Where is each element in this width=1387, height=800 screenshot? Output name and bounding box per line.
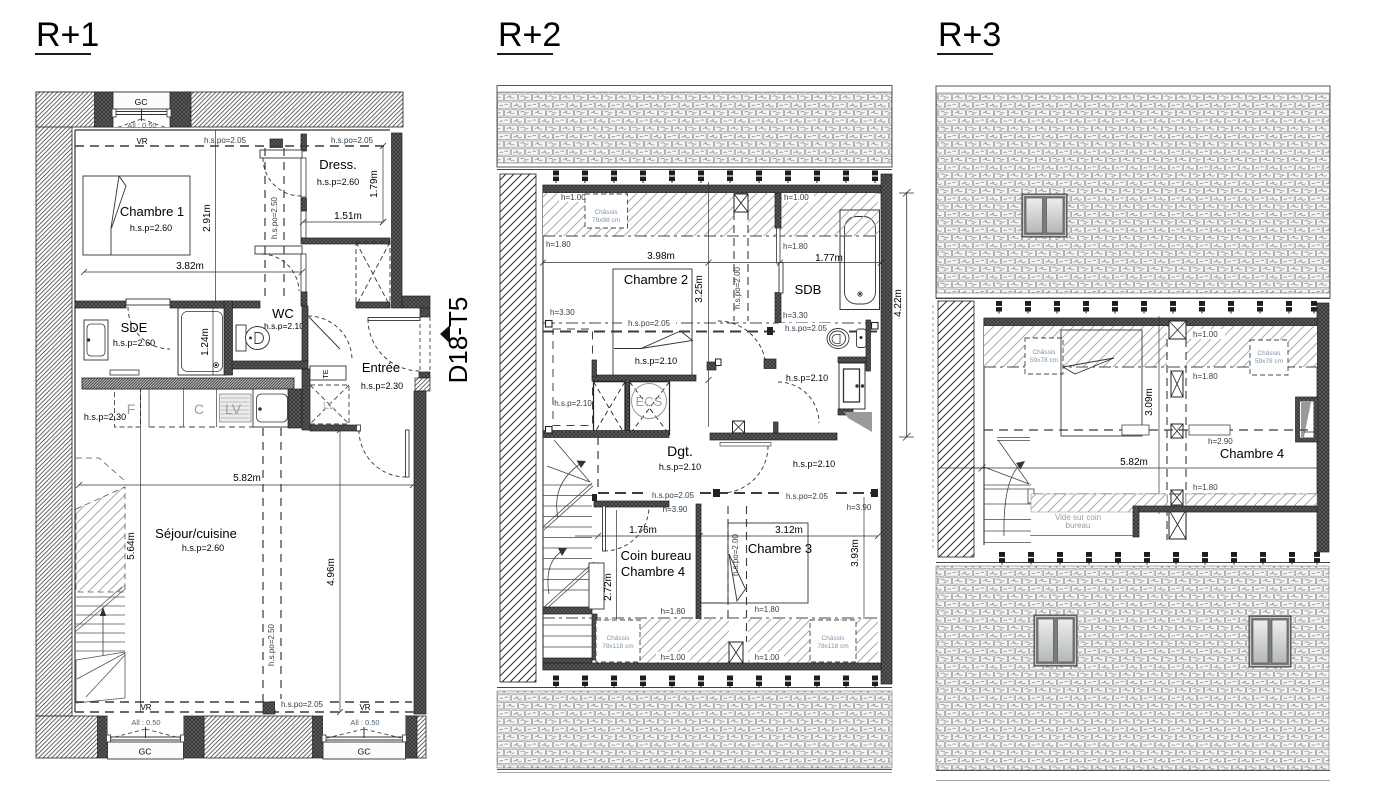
svg-text:h.s.po=2.50: h.s.po=2.50 <box>267 623 276 666</box>
svg-text:Chambre 1: Chambre 1 <box>120 204 184 219</box>
svg-text:All : 0.50: All : 0.50 <box>350 718 379 727</box>
svg-text:h=3.90: h=3.90 <box>847 503 872 512</box>
svg-text:Coin bureau: Coin bureau <box>621 548 692 563</box>
svg-text:h.s.po=2.05: h.s.po=2.05 <box>281 700 324 709</box>
svg-text:F: F <box>127 401 136 417</box>
svg-text:bureau: bureau <box>1066 521 1091 530</box>
svg-text:3.25m: 3.25m <box>694 275 705 303</box>
svg-text:h.s.po=2.05: h.s.po=2.05 <box>628 319 671 328</box>
svg-text:59x78 cm: 59x78 cm <box>1030 357 1058 364</box>
svg-text:Entrée: Entrée <box>362 360 400 375</box>
svg-text:VR: VR <box>359 703 370 712</box>
svg-text:h.s.p=2.10: h.s.p=2.10 <box>659 462 701 472</box>
svg-text:Dress.: Dress. <box>319 157 357 172</box>
svg-text:LV: LV <box>225 401 242 417</box>
svg-text:Châssis: Châssis <box>594 209 618 216</box>
svg-text:Chambre 4: Chambre 4 <box>621 564 685 579</box>
svg-text:3.98m: 3.98m <box>647 251 675 262</box>
svg-text:h.s.po=2.00: h.s.po=2.00 <box>731 533 740 576</box>
svg-text:h.s.po=2.05: h.s.po=2.05 <box>331 136 374 145</box>
svg-text:59x78 cm: 59x78 cm <box>1255 358 1283 365</box>
svg-text:Séjour/cuisine: Séjour/cuisine <box>155 526 237 541</box>
svg-text:h=1.00: h=1.00 <box>561 193 586 202</box>
svg-text:5.82m: 5.82m <box>233 473 261 484</box>
svg-text:Châssis: Châssis <box>821 635 845 642</box>
svg-text:LL: LL <box>323 400 335 412</box>
svg-text:TE: TE <box>323 369 330 378</box>
svg-text:Chambre 2: Chambre 2 <box>624 272 688 287</box>
svg-text:h=1.80: h=1.80 <box>661 607 686 616</box>
svg-text:h.s.p=2.10: h.s.p=2.10 <box>635 356 677 366</box>
svg-text:WC: WC <box>272 306 294 321</box>
svg-text:h=1.80: h=1.80 <box>546 240 571 249</box>
svg-text:Chambre 4: Chambre 4 <box>1220 446 1284 461</box>
svg-text:4.22m: 4.22m <box>893 289 904 317</box>
svg-text:5.82m: 5.82m <box>1120 457 1148 468</box>
svg-text:4.96m: 4.96m <box>326 558 337 586</box>
svg-text:h=1.80: h=1.80 <box>783 242 808 251</box>
svg-text:h.s.p=2.10: h.s.p=2.10 <box>793 459 835 469</box>
svg-text:Chambre 3: Chambre 3 <box>748 541 812 556</box>
svg-text:h.s.p=2.30: h.s.p=2.30 <box>84 412 126 422</box>
svg-text:h.s.p=2.10: h.s.p=2.10 <box>264 321 304 331</box>
svg-text:h=1.00: h=1.00 <box>755 653 780 662</box>
svg-text:h.s.p=2.10: h.s.p=2.10 <box>786 373 828 383</box>
svg-text:h.s.po=2.05: h.s.po=2.05 <box>786 492 829 501</box>
svg-text:2.72m: 2.72m <box>603 573 614 601</box>
svg-text:h.s.po=2.50: h.s.po=2.50 <box>270 196 279 239</box>
svg-text:3.82m: 3.82m <box>176 261 204 272</box>
svg-text:h.s.p=2.60: h.s.p=2.60 <box>182 543 224 553</box>
svg-text:h.s.po=2.05: h.s.po=2.05 <box>785 324 828 333</box>
svg-text:Châssis: Châssis <box>1032 349 1056 356</box>
svg-text:GC: GC <box>139 747 152 757</box>
svg-text:78x98 cm: 78x98 cm <box>592 217 620 224</box>
svg-text:h=1.00: h=1.00 <box>1193 330 1218 339</box>
svg-text:Châssis: Châssis <box>606 635 630 642</box>
svg-text:h=3.30: h=3.30 <box>783 311 808 320</box>
svg-text:h.s.p=2.30: h.s.p=2.30 <box>361 381 403 391</box>
svg-text:5.64m: 5.64m <box>126 532 137 560</box>
svg-text:VR: VR <box>136 137 147 146</box>
svg-text:GC: GC <box>358 747 371 757</box>
svg-text:GC: GC <box>135 97 148 107</box>
svg-text:h=1.00: h=1.00 <box>661 653 686 662</box>
svg-text:D18-T5: D18-T5 <box>443 297 473 384</box>
svg-text:3.93m: 3.93m <box>850 539 861 567</box>
svg-text:h=1.80: h=1.80 <box>1193 483 1218 492</box>
svg-text:1.79m: 1.79m <box>369 170 380 198</box>
svg-text:78x118 cm: 78x118 cm <box>817 643 848 650</box>
svg-text:h=3.30: h=3.30 <box>550 308 575 317</box>
svg-text:78x118 cm: 78x118 cm <box>602 643 633 650</box>
svg-text:3.09m: 3.09m <box>1144 388 1155 416</box>
svg-text:1.51m: 1.51m <box>334 211 362 222</box>
svg-text:SDB: SDB <box>795 282 822 297</box>
svg-text:h.s.po=2.05: h.s.po=2.05 <box>652 491 695 500</box>
svg-text:R+1: R+1 <box>36 16 99 54</box>
svg-text:h.s.po=2.05: h.s.po=2.05 <box>204 136 247 145</box>
svg-text:h.s.p=2.60: h.s.p=2.60 <box>113 338 155 348</box>
svg-text:ECS: ECS <box>636 394 663 409</box>
svg-text:All : 0.50: All : 0.50 <box>131 718 160 727</box>
svg-text:h=2.90: h=2.90 <box>1208 437 1233 446</box>
svg-text:h.s.p=2.60: h.s.p=2.60 <box>317 177 359 187</box>
svg-text:SDE: SDE <box>121 320 148 335</box>
svg-text:Dgt.: Dgt. <box>667 443 693 459</box>
svg-text:h=1.00: h=1.00 <box>784 193 809 202</box>
svg-text:C: C <box>194 401 204 417</box>
svg-text:h.s.po=2.00: h.s.po=2.00 <box>733 266 742 309</box>
svg-text:1.24m: 1.24m <box>200 328 211 356</box>
svg-text:1.77m: 1.77m <box>815 253 843 264</box>
svg-text:VR: VR <box>140 703 151 712</box>
svg-text:R+3: R+3 <box>938 16 1001 54</box>
svg-text:h.s.p=2.60: h.s.p=2.60 <box>130 223 172 233</box>
svg-text:2.91m: 2.91m <box>202 204 213 232</box>
svg-text:h=1.80: h=1.80 <box>755 605 780 614</box>
svg-text:3.12m: 3.12m <box>775 525 803 536</box>
svg-text:R+2: R+2 <box>498 16 561 54</box>
svg-text:h=1.80: h=1.80 <box>1193 372 1218 381</box>
svg-text:All : 0.50: All : 0.50 <box>127 121 156 130</box>
svg-text:1.76m: 1.76m <box>629 525 657 536</box>
svg-text:h.s.p=2.10: h.s.p=2.10 <box>554 399 592 408</box>
svg-text:Châssis: Châssis <box>1257 350 1281 357</box>
